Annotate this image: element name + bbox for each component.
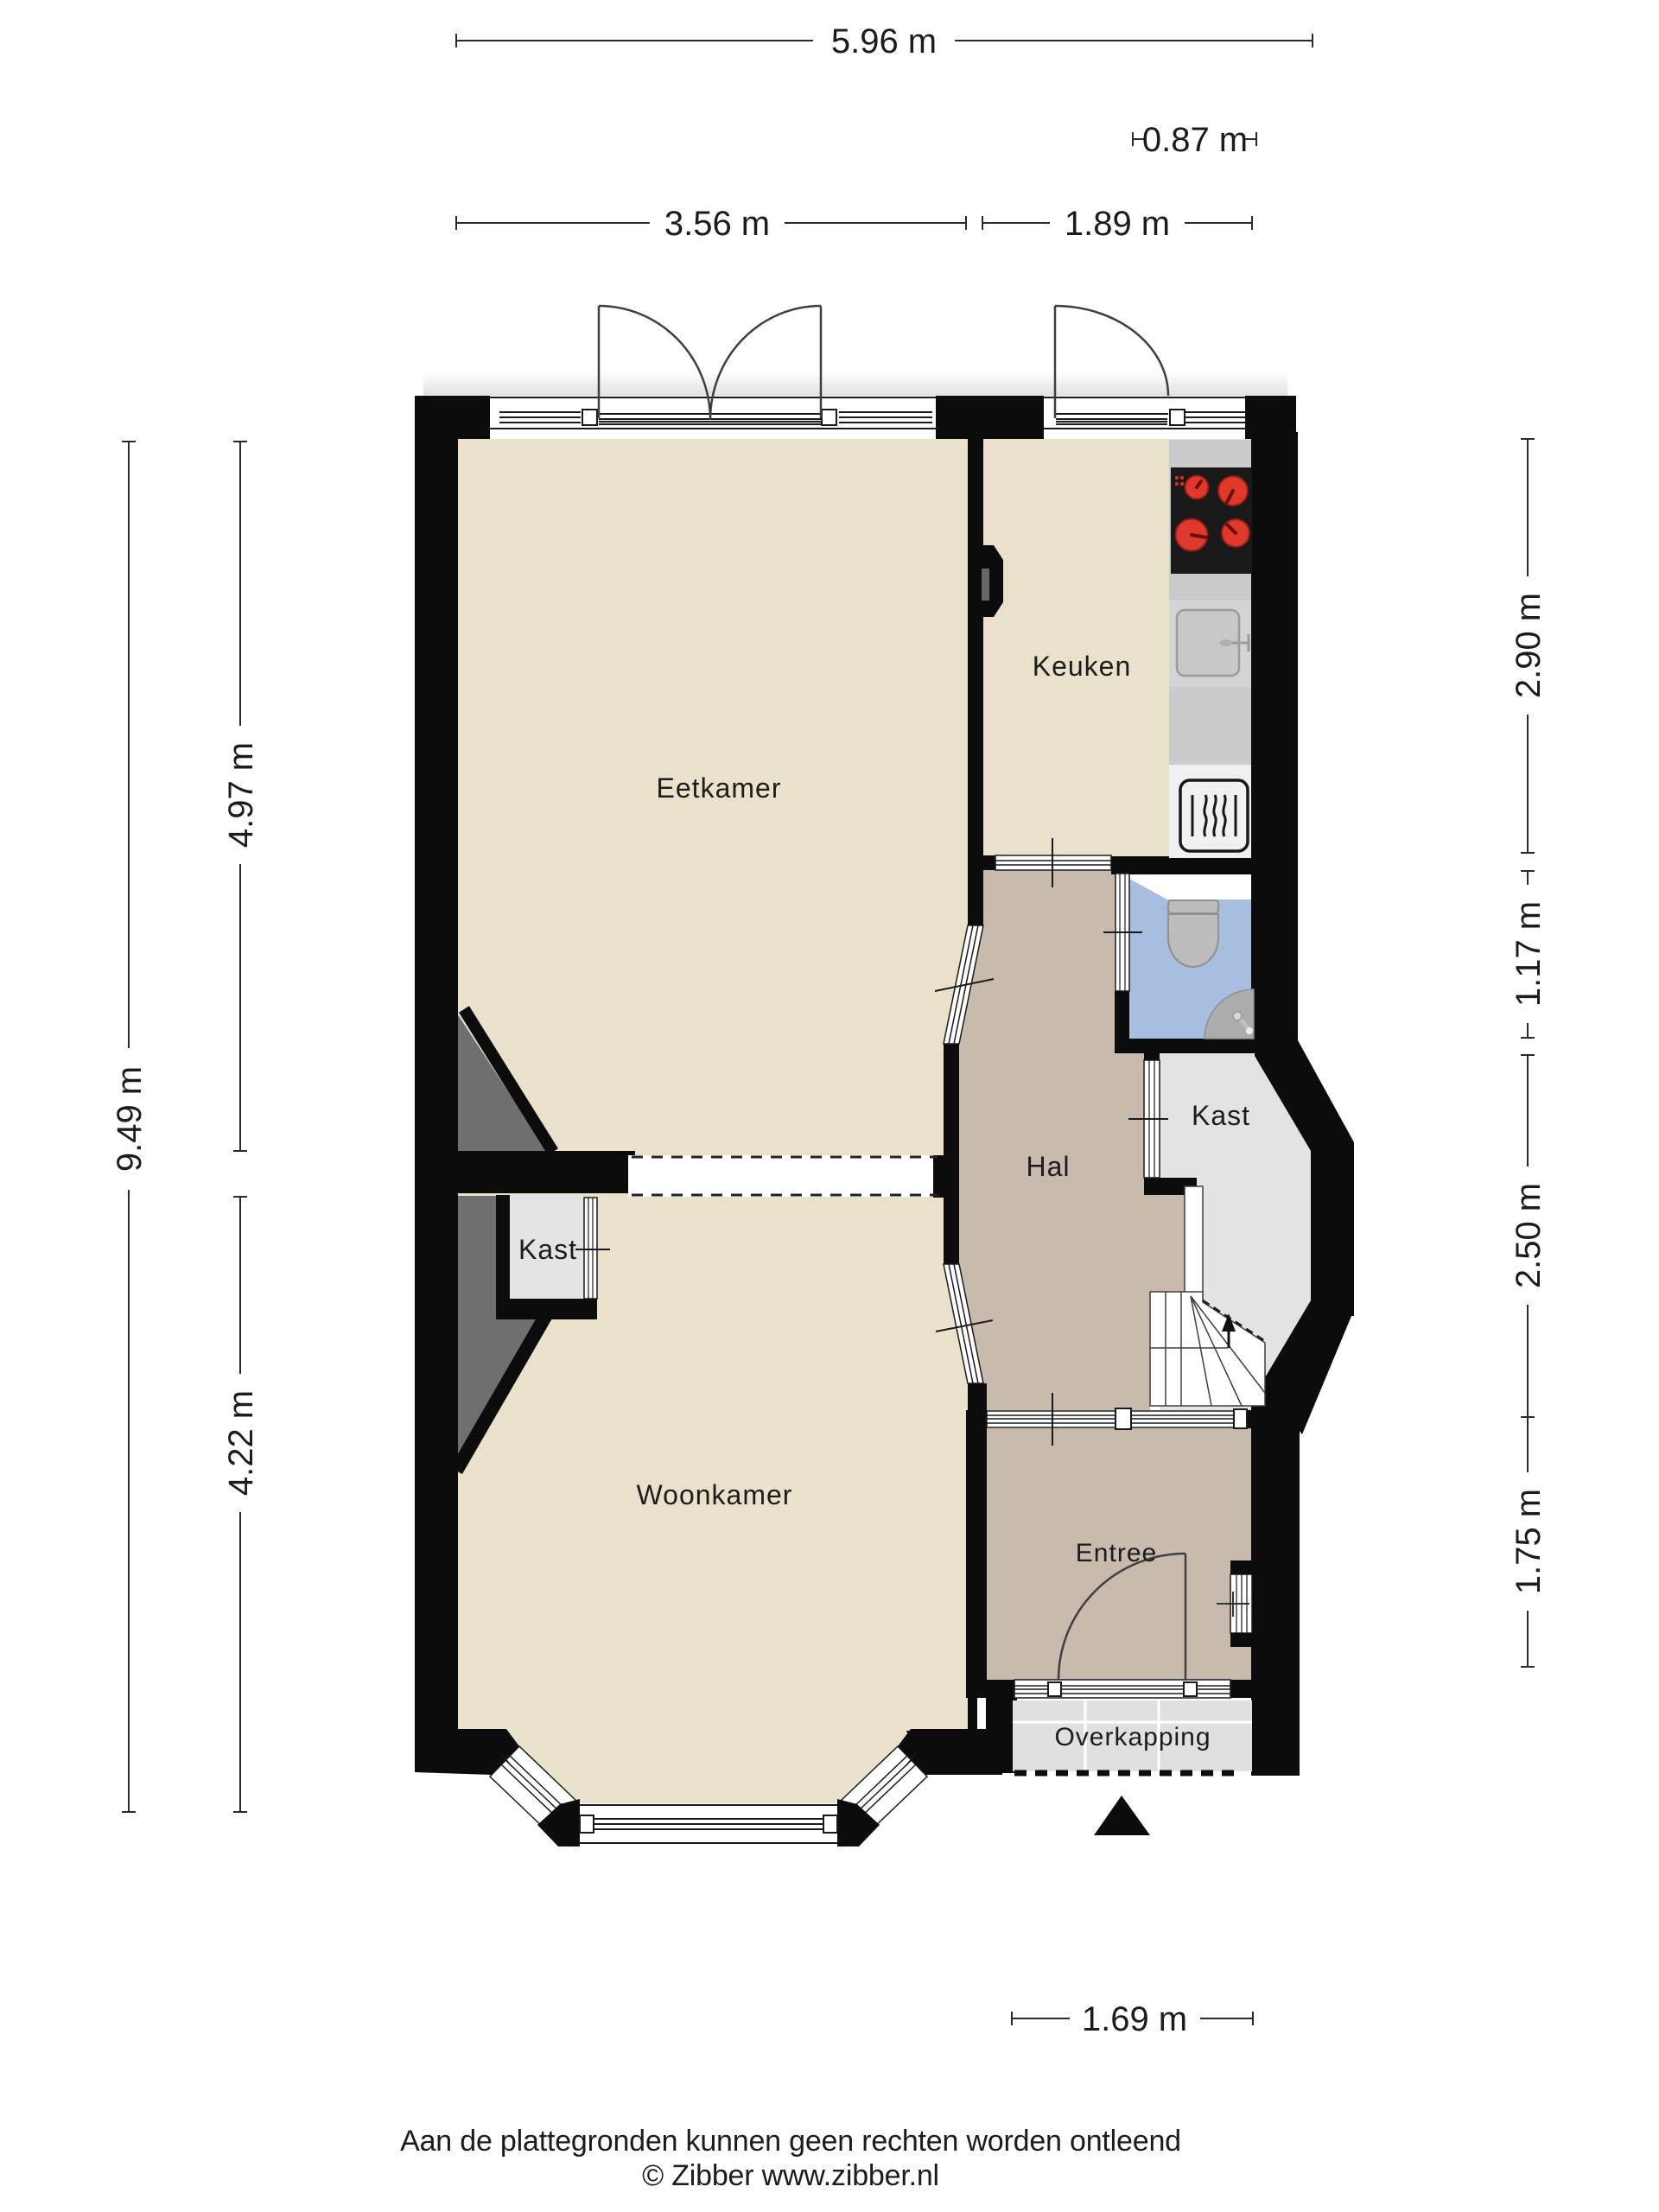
svg-text:9.49 m: 9.49 m [111, 1066, 149, 1172]
svg-text:Kast: Kast [518, 1234, 577, 1265]
svg-text:Woonkamer: Woonkamer [637, 1479, 793, 1510]
svg-text:© Zibber www.zibber.nl: © Zibber www.zibber.nl [642, 2159, 939, 2192]
svg-text:4.22 m: 4.22 m [222, 1390, 260, 1496]
svg-text:2.90 m: 2.90 m [1510, 593, 1548, 698]
svg-text:Entree: Entree [1076, 1539, 1157, 1567]
svg-text:Eetkamer: Eetkamer [657, 772, 782, 804]
svg-text:1.89 m: 1.89 m [1065, 205, 1170, 243]
svg-text:Hal: Hal [1026, 1151, 1070, 1182]
svg-text:Kast: Kast [1192, 1100, 1250, 1131]
svg-text:3.56 m: 3.56 m [664, 205, 770, 243]
svg-text:2.50 m: 2.50 m [1510, 1183, 1548, 1288]
svg-text:Aan de plattegronden kunnen ge: Aan de plattegronden kunnen geen rechten… [400, 2125, 1181, 2158]
svg-text:1.17 m: 1.17 m [1510, 901, 1548, 1007]
svg-text:Keuken: Keuken [1033, 651, 1132, 682]
svg-text:4.97 m: 4.97 m [222, 742, 260, 848]
svg-text:1.69 m: 1.69 m [1082, 2000, 1187, 2038]
svg-text:1.75 m: 1.75 m [1510, 1489, 1548, 1594]
svg-text:Overkapping: Overkapping [1054, 1723, 1211, 1751]
svg-text:0.87 m: 0.87 m [1142, 121, 1248, 159]
